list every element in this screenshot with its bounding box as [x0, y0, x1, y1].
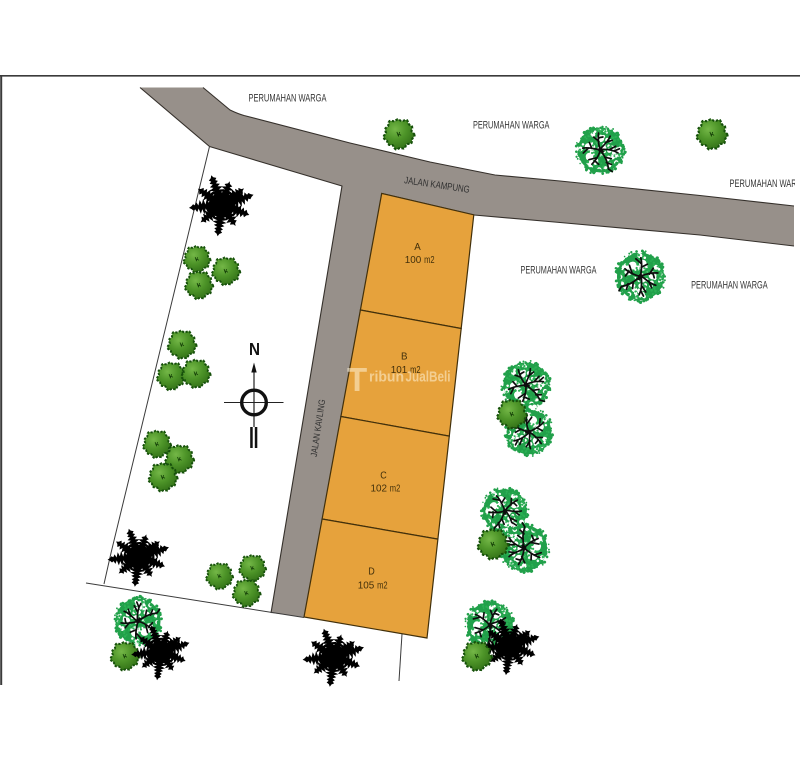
- svg-text:N: N: [249, 339, 260, 359]
- svg-text:m2: m2: [390, 482, 401, 494]
- svg-text:PERUMAHAN WARGA: PERUMAHAN WARGA: [249, 93, 328, 105]
- svg-text:B: B: [401, 350, 408, 362]
- svg-text:100: 100: [405, 254, 422, 266]
- svg-text:PERUMAHAN WARGA: PERUMAHAN WARGA: [521, 264, 598, 276]
- svg-text:PERUMAHAN WARGA: PERUMAHAN WARGA: [473, 120, 550, 132]
- svg-text:JualBeli: JualBeli: [406, 370, 451, 386]
- svg-text:PERUMAHAN WARGA: PERUMAHAN WARGA: [691, 279, 768, 291]
- svg-text:T: T: [347, 361, 367, 398]
- svg-text:C: C: [380, 469, 387, 481]
- svg-text:m2: m2: [424, 254, 435, 266]
- svg-text:PERUMAHAN WARGA: PERUMAHAN WARGA: [730, 178, 800, 190]
- svg-text:m2: m2: [377, 580, 388, 592]
- svg-text:ribun: ribun: [369, 369, 404, 386]
- svg-text:A: A: [414, 241, 421, 253]
- svg-text:102: 102: [371, 482, 388, 494]
- svg-text:105: 105: [358, 580, 375, 592]
- svg-text:D: D: [368, 566, 375, 578]
